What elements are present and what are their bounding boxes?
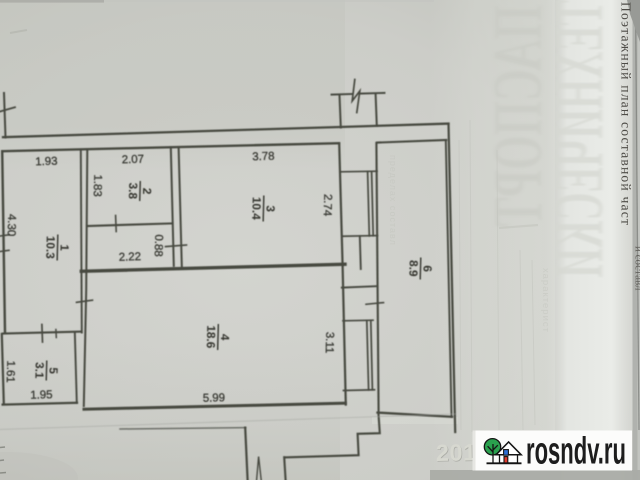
svg-text:0.88: 0.88 [152, 234, 165, 257]
svg-text:1.93: 1.93 [35, 156, 58, 169]
svg-text:2.22: 2.22 [118, 251, 141, 264]
svg-text:8.9: 8.9 [406, 260, 420, 277]
svg-text:2.74: 2.74 [321, 194, 334, 217]
svg-text:1.83: 1.83 [91, 174, 104, 197]
svg-text:5.99: 5.99 [203, 392, 226, 405]
svg-text:2.07: 2.07 [121, 154, 144, 167]
svg-text:10.3: 10.3 [43, 236, 58, 260]
svg-text:5: 5 [46, 367, 60, 374]
svg-text:4.30: 4.30 [5, 214, 18, 237]
svg-text:3: 3 [263, 205, 277, 212]
svg-text:1.95: 1.95 [30, 389, 53, 402]
svg-text:2: 2 [140, 188, 154, 195]
svg-text:3.8: 3.8 [126, 182, 140, 199]
svg-text:rosndv.ru: rosndv.ru [526, 429, 626, 472]
svg-text:3.1: 3.1 [32, 362, 46, 379]
svg-text:Поэтажный план составной част: Поэтажный план составной част [619, 2, 634, 226]
svg-text:ТЕХНИЧЕСКИ: ТЕХНИЧЕСКИ [540, 0, 618, 278]
svg-text:18.6: 18.6 [204, 325, 219, 349]
svg-text:и составл: и составл [633, 246, 640, 291]
svg-text:пределах составл: пределах составл [388, 155, 398, 246]
svg-text:3.11: 3.11 [323, 332, 336, 354]
svg-text:1.61: 1.61 [4, 360, 17, 383]
svg-text:характерист: характерист [540, 268, 551, 333]
svg-text:3.78: 3.78 [252, 151, 275, 164]
svg-text:10.4: 10.4 [249, 197, 264, 221]
svg-text:6: 6 [420, 265, 434, 272]
svg-text:1: 1 [57, 244, 71, 251]
svg-text:4: 4 [218, 334, 232, 341]
